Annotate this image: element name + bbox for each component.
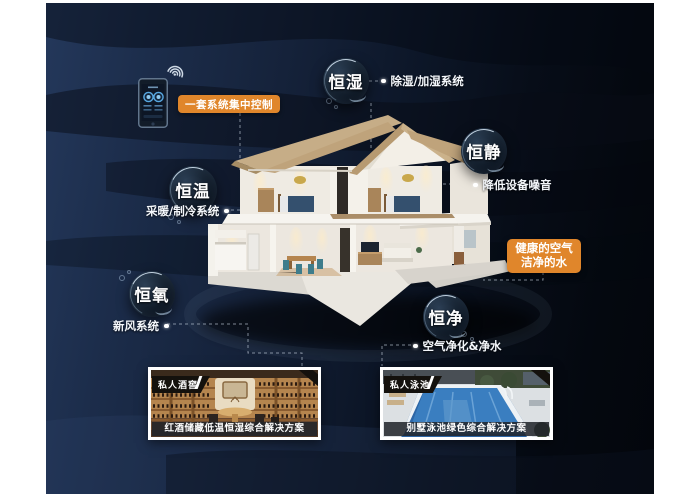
feature-heating-cooling-text: 采暖/制冷系统 xyxy=(146,203,219,219)
feature-heating-cooling: 采暖/制冷系统 xyxy=(146,203,229,219)
central-control-label: 一套系统集中控制 xyxy=(178,95,280,113)
feature-dehumidify-humidify: 除湿/加湿系统 xyxy=(381,73,464,89)
bullet-dot xyxy=(164,324,169,329)
infographic-poster: 一套系统集中控制 恒湿 恒静 恒温 恒氧 恒净 除湿/加湿系统 降低设备噪音 采… xyxy=(0,0,700,497)
bullet-dot xyxy=(473,183,478,188)
wine-cellar-caption: 红酒储藏低温恒湿综合解决方案 xyxy=(152,422,317,436)
bubble-temperature-label: 恒温 xyxy=(176,178,211,202)
feature-noise-reduction-text: 降低设备噪音 xyxy=(483,177,552,193)
wifi-icon xyxy=(166,60,186,78)
healthy-air-clean-water-badge: 健康的空气 洁净的水 xyxy=(507,239,581,273)
smart-home-controller-icon xyxy=(138,78,168,128)
bubble-purity: 恒净 xyxy=(423,294,469,340)
feature-fresh-air-text: 新风系统 xyxy=(113,318,159,334)
feature-fresh-air: 新风系统 xyxy=(113,318,169,334)
bubble-quiet-label: 恒静 xyxy=(467,139,502,163)
badge-line2: 洁净的水 xyxy=(507,256,581,270)
feature-dehumidify-humidify-text: 除湿/加湿系统 xyxy=(391,73,464,89)
bullet-dot xyxy=(413,344,418,349)
bubble-oxygen: 恒氧 xyxy=(129,271,175,317)
badge-line1: 健康的空气 xyxy=(507,242,581,256)
bubble-humidity-label: 恒湿 xyxy=(329,69,364,93)
feature-air-water-purification-text: 空气净化&净水 xyxy=(423,338,502,354)
feature-air-water-purification: 空气净化&净水 xyxy=(413,338,502,354)
pool-caption: 别墅泳池绿色综合解决方案 xyxy=(384,422,549,436)
bullet-dot xyxy=(381,79,386,84)
bubble-humidity: 恒湿 xyxy=(323,58,369,104)
bullet-dot xyxy=(224,209,229,214)
feature-noise-reduction: 降低设备噪音 xyxy=(473,177,552,193)
pool-card: 私人泳池 别墅泳池绿色综合解决方案 xyxy=(380,367,553,440)
bubble-purity-label: 恒净 xyxy=(429,305,464,329)
bubble-oxygen-label: 恒氧 xyxy=(135,282,170,306)
bubble-quiet: 恒静 xyxy=(461,128,507,174)
wine-cellar-card: 私人酒窖 红酒储藏低温恒湿综合解决方案 xyxy=(148,367,321,440)
